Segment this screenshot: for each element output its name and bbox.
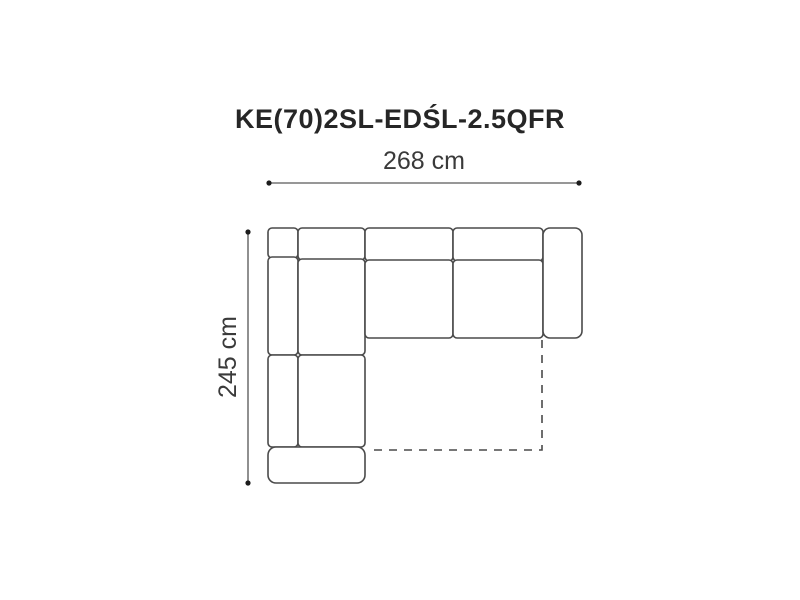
sofa-module-seat-right-cushion	[453, 260, 543, 338]
sofa-outline-drawing	[0, 0, 800, 600]
height-dimension-line	[245, 229, 250, 485]
sofa-module-chaise-seat-lower	[298, 355, 365, 447]
sofa-module-corner-backrest	[268, 228, 298, 258]
width-dimension-line	[266, 180, 581, 185]
sofa-module-chaise-seat-upper	[298, 259, 365, 355]
diagram-canvas: KE(70)2SL-EDŚL-2.5QFR 268 cm 245 cm	[0, 0, 800, 600]
sofa-module-left-backrest-upper	[268, 257, 298, 355]
sofa-module-right-armrest	[543, 228, 582, 338]
sofa-module-chaise-front	[268, 447, 365, 483]
sofa-module-chaise-backrest	[298, 228, 365, 260]
sofa-module-left-backrest-lower	[268, 355, 298, 447]
sofa-module-seat-left-backrest	[365, 228, 453, 261]
sofa-module-seat-right-backrest	[453, 228, 543, 261]
fold-out-bed-outline	[368, 340, 542, 450]
sofa-module-seat-left-cushion	[365, 260, 453, 338]
